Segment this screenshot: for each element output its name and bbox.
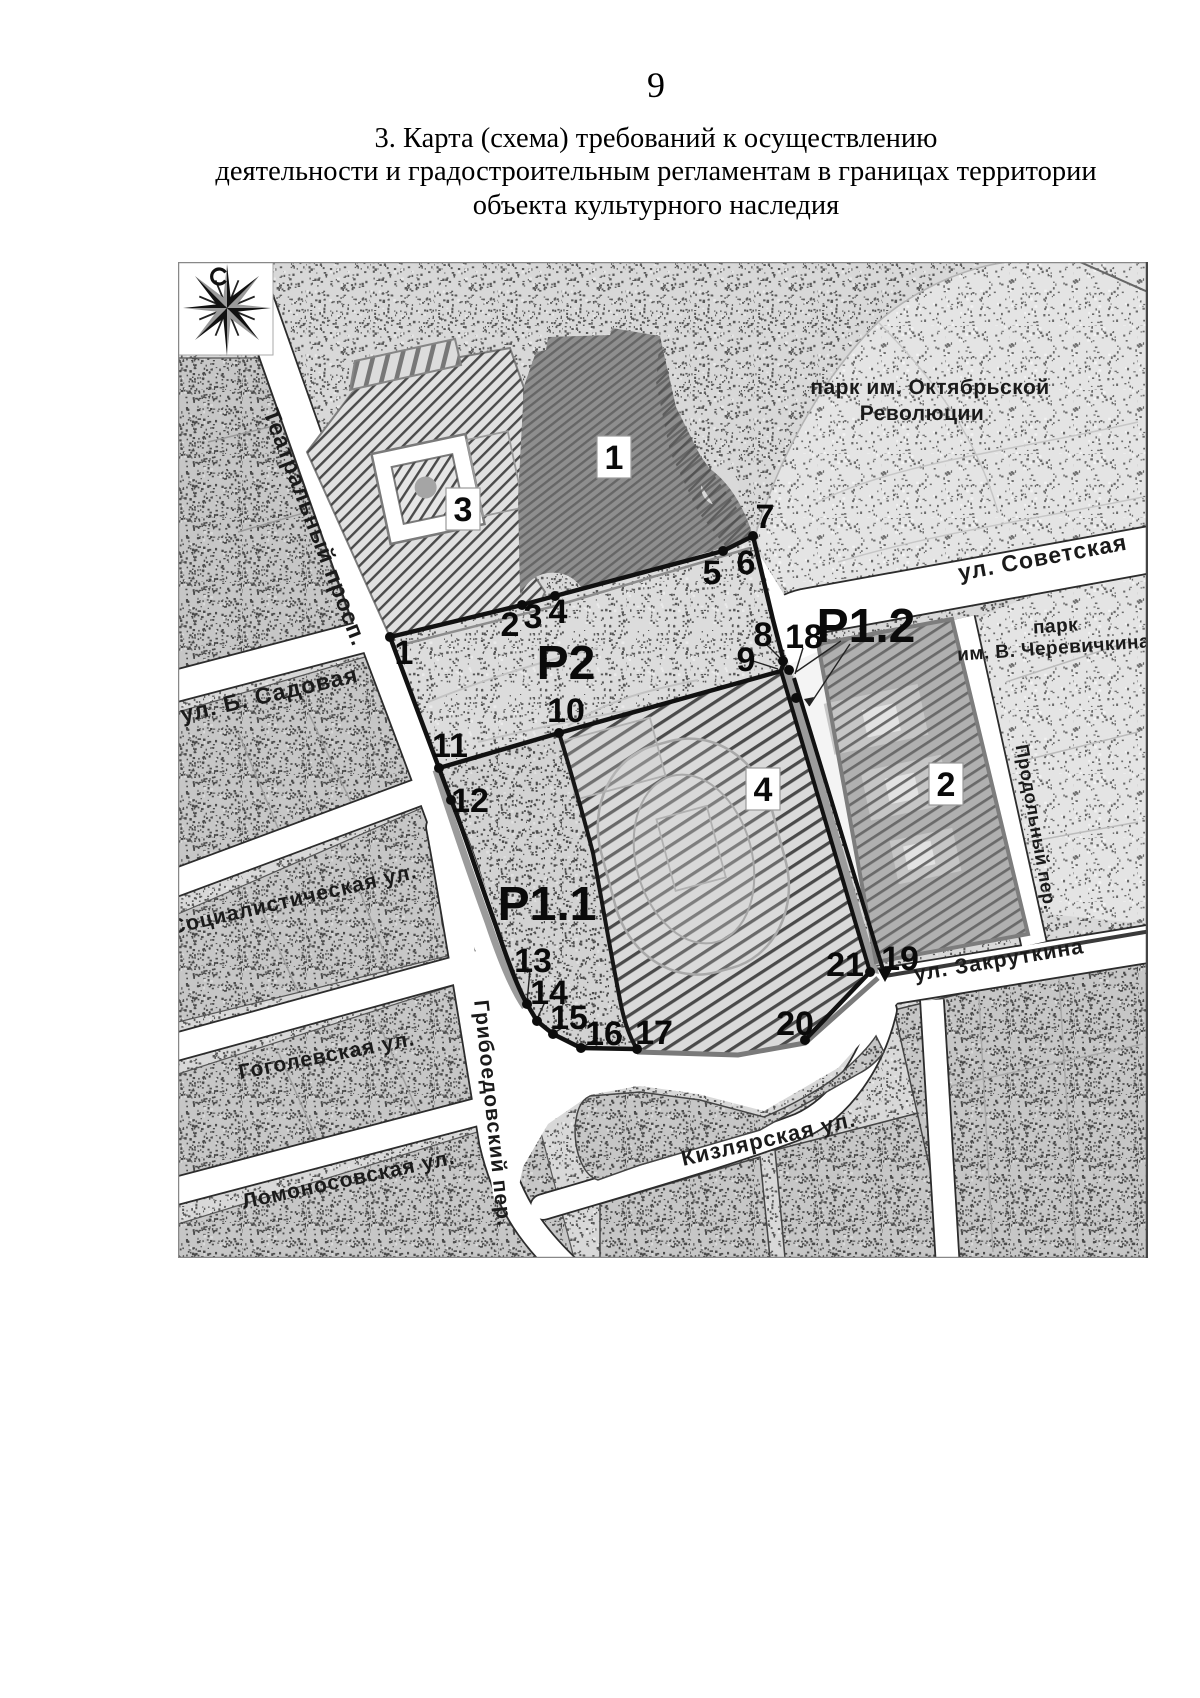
svg-text:16: 16 — [585, 1015, 623, 1053]
svg-text:5: 5 — [703, 554, 722, 592]
svg-text:17: 17 — [635, 1014, 673, 1052]
svg-text:3: 3 — [524, 598, 543, 636]
svg-text:1: 1 — [605, 439, 624, 477]
svg-text:2: 2 — [501, 606, 520, 644]
svg-text:Революции: Революции — [860, 402, 985, 425]
svg-text:11: 11 — [432, 727, 468, 765]
svg-text:Р1.1: Р1.1 — [498, 878, 597, 931]
svg-text:10: 10 — [547, 692, 585, 730]
svg-text:3: 3 — [454, 491, 473, 529]
svg-text:2: 2 — [937, 766, 956, 804]
svg-text:парк: парк — [1032, 614, 1079, 638]
svg-text:20: 20 — [776, 1005, 814, 1043]
svg-text:парк им. Октябрьской: парк им. Октябрьской — [810, 376, 1049, 399]
svg-text:4: 4 — [549, 593, 568, 631]
svg-text:Р2: Р2 — [537, 637, 596, 690]
svg-text:7: 7 — [756, 498, 775, 536]
svg-text:Р1.2: Р1.2 — [817, 600, 916, 653]
svg-text:9: 9 — [737, 641, 756, 679]
svg-text:4: 4 — [754, 771, 773, 809]
svg-text:15: 15 — [550, 999, 588, 1037]
svg-text:1: 1 — [395, 634, 414, 672]
svg-text:21: 21 — [826, 946, 864, 984]
svg-text:8: 8 — [754, 616, 773, 654]
svg-text:12: 12 — [451, 782, 489, 820]
svg-text:6: 6 — [737, 544, 756, 582]
